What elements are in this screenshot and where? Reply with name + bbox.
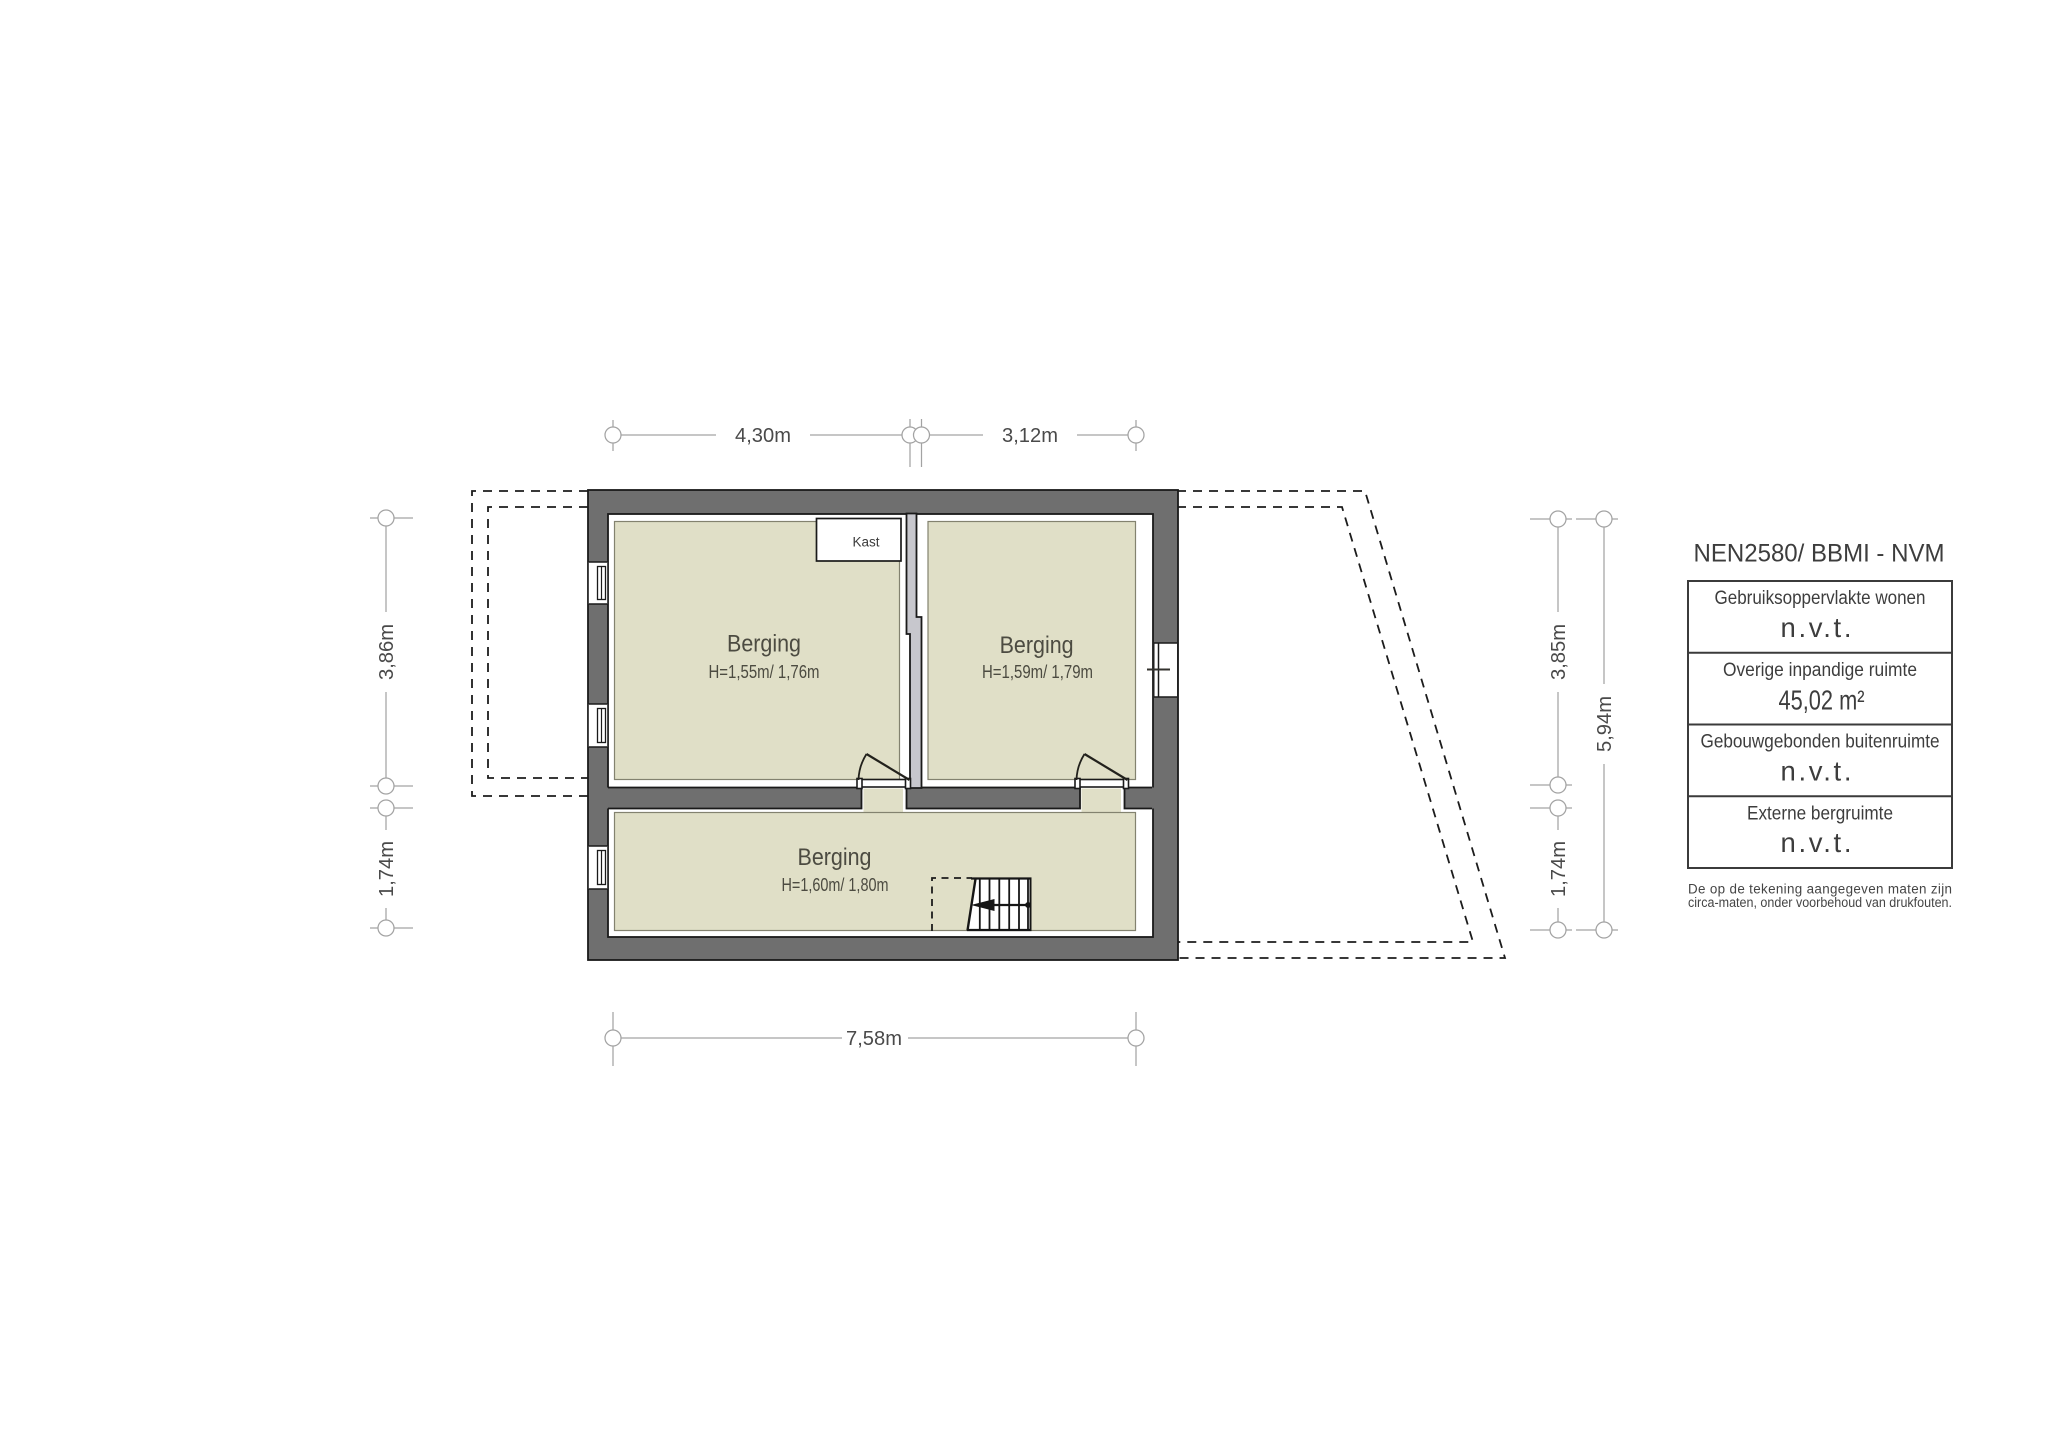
- svg-text:Berging: Berging: [1000, 632, 1074, 659]
- svg-text:Kast: Kast: [852, 535, 879, 550]
- svg-text:n.v.t.: n.v.t.: [1781, 827, 1852, 858]
- svg-text:45,02 m²: 45,02 m²: [1779, 685, 1865, 716]
- svg-text:1,74m: 1,74m: [376, 841, 398, 897]
- svg-text:5,94m: 5,94m: [1594, 696, 1616, 752]
- svg-text:1,74m: 1,74m: [1548, 841, 1570, 897]
- svg-text:n.v.t.: n.v.t.: [1781, 612, 1852, 643]
- svg-text:3,85m: 3,85m: [1548, 624, 1570, 680]
- svg-text:circa-maten, onder voorbehoud: circa-maten, onder voorbehoud van drukfo…: [1688, 895, 1952, 910]
- svg-text:Overige inpandige ruimte: Overige inpandige ruimte: [1723, 659, 1917, 681]
- svg-text:Berging: Berging: [798, 844, 872, 871]
- svg-text:Gebouwgebonden buitenruimte: Gebouwgebonden buitenruimte: [1701, 731, 1940, 753]
- svg-text:H=1,59m/ 1,79m: H=1,59m/ 1,79m: [982, 662, 1093, 682]
- svg-text:n.v.t.: n.v.t.: [1781, 756, 1852, 787]
- svg-text:H=1,55m/ 1,76m: H=1,55m/ 1,76m: [709, 662, 820, 682]
- svg-text:Berging: Berging: [727, 631, 801, 658]
- svg-text:3,12m: 3,12m: [1002, 425, 1058, 447]
- svg-text:7,58m: 7,58m: [846, 1028, 902, 1050]
- svg-text:4,30m: 4,30m: [735, 425, 791, 447]
- svg-text:Externe bergruimte: Externe bergruimte: [1747, 802, 1893, 824]
- svg-text:3,86m: 3,86m: [376, 624, 398, 680]
- svg-text:H=1,60m/ 1,80m: H=1,60m/ 1,80m: [782, 875, 889, 895]
- svg-text:NEN2580/ BBMI - NVM: NEN2580/ BBMI - NVM: [1694, 540, 1945, 568]
- svg-text:Gebruiksoppervlakte wonen: Gebruiksoppervlakte wonen: [1715, 587, 1926, 609]
